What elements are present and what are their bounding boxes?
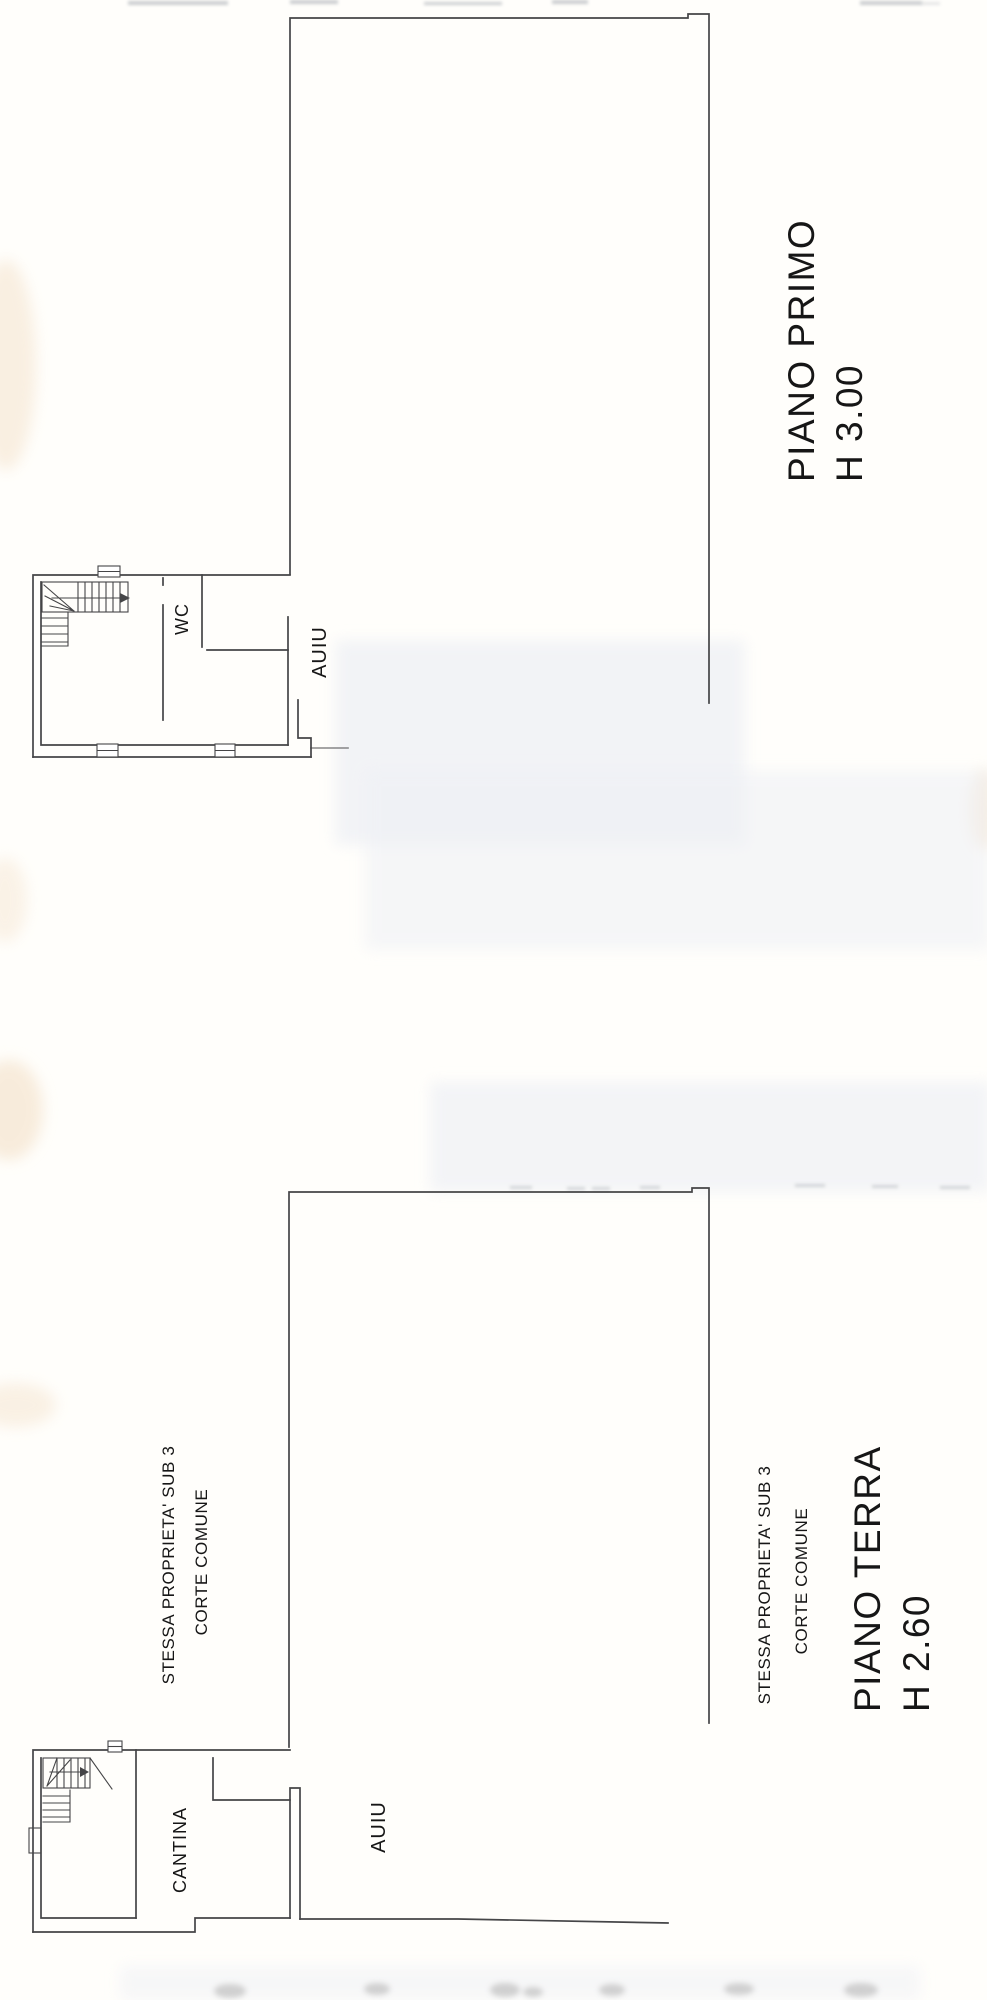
stair-treads: [78, 582, 120, 612]
smudge-above-ground-floor: [430, 1082, 987, 1192]
note-common-court-right: CORTE COMUNE: [792, 1508, 811, 1655]
annex-inner-wall: [41, 1758, 136, 1918]
window-icon: [97, 744, 118, 757]
adjacent-unit-label: AUIU: [309, 626, 331, 678]
courtyard-boundary: [300, 1919, 668, 1923]
scanned-floorplan-page: WC AUIU PIANO PRIMO H 3.00: [0, 0, 987, 2000]
stair-lower-treads: [43, 1790, 70, 1822]
stain-left-lower: [0, 1060, 43, 1160]
stair-lower-treads: [42, 612, 68, 646]
window-icon: [215, 744, 235, 757]
stain-left-bottom: [0, 1383, 56, 1427]
floor-plan-drawing: WC AUIU PIANO PRIMO H 3.00: [0, 0, 987, 2000]
cantina-step-wall: [213, 1758, 290, 1800]
scan-artifacts: [0, 0, 987, 2000]
room-label-cantina: CANTINA: [170, 1807, 190, 1893]
note-common-court-left: CORTE COMUNE: [192, 1489, 211, 1636]
main-room-outline: [289, 1188, 709, 1747]
note-same-property-left: STESSA PROPRIETA' SUB 3: [159, 1446, 178, 1685]
annex-outer-wall-bottom: [33, 1918, 290, 1932]
floor-height-label: H 2.60: [896, 1594, 937, 1712]
main-room-outline: [290, 14, 709, 703]
door-icon: [98, 566, 120, 577]
annex-outer-wall-left-top: [33, 575, 290, 757]
floor-title: PIANO TERRA: [847, 1445, 888, 1712]
wall-pilaster: [29, 1828, 41, 1853]
staircase: [42, 582, 130, 646]
floor-piano-terra: CANTINA AUIU STESSA PROPRIETA' SUB 3 COR…: [29, 1188, 937, 1932]
smudge-mid-band: [365, 770, 987, 950]
top-edge-marks: [128, 0, 940, 5]
stain-left-middle: [0, 858, 27, 942]
cantina-right-wall: [290, 1788, 300, 1919]
adjacent-unit-label: AUIU: [368, 1801, 390, 1853]
stain-left-top: [0, 260, 36, 470]
floor-title: PIANO PRIMO: [781, 219, 822, 482]
room-label-wc: WC: [172, 603, 192, 635]
door-icon: [108, 1741, 122, 1752]
staircase: [43, 1758, 112, 1822]
floor-height-label: H 3.00: [829, 364, 870, 482]
annex-corner-stub: [298, 700, 311, 757]
note-same-property-right: STESSA PROPRIETA' SUB 3: [755, 1466, 774, 1705]
